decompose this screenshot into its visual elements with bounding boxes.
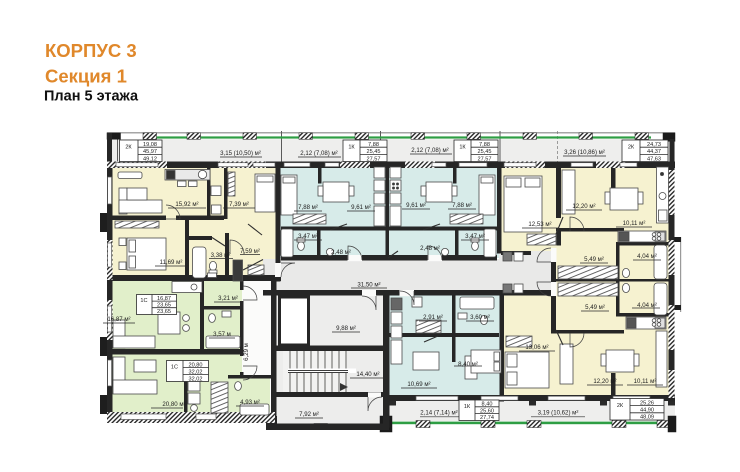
svg-text:КОРПУС 3: КОРПУС 3 [45, 40, 137, 61]
svg-text:3,15 (10,50) м²: 3,15 (10,50) м² [220, 150, 261, 157]
svg-text:19,08: 19,08 [143, 142, 157, 148]
svg-text:3,26 (10,86) м²: 3,26 (10,86) м² [564, 149, 605, 156]
svg-text:25,45: 25,45 [367, 149, 381, 155]
svg-text:23,65: 23,65 [157, 303, 171, 309]
svg-text:2,91 м²: 2,91 м² [423, 314, 443, 321]
svg-text:1С: 1С [140, 298, 147, 304]
svg-text:3,19 (10,62) м²: 3,19 (10,62) м² [538, 410, 579, 417]
svg-text:6,29 м: 6,29 м [243, 343, 250, 361]
svg-text:9,88 м²: 9,88 м² [336, 325, 356, 332]
svg-text:Секция 1: Секция 1 [45, 66, 127, 87]
svg-text:2,12 (7,08) м²: 2,12 (7,08) м² [300, 150, 337, 157]
svg-text:3,60 м²: 3,60 м² [470, 314, 490, 321]
svg-text:2К: 2К [628, 145, 635, 151]
svg-text:13,06 м²: 13,06 м² [525, 344, 548, 351]
svg-text:48,09: 48,09 [640, 415, 654, 421]
svg-text:8,40 м²: 8,40 м² [458, 361, 478, 368]
svg-text:2К: 2К [617, 403, 624, 409]
svg-text:1К: 1К [348, 145, 355, 151]
svg-text:14,40 м²: 14,40 м² [356, 371, 379, 378]
svg-text:16,87 м²: 16,87 м² [107, 316, 130, 323]
svg-text:27,74: 27,74 [480, 415, 494, 421]
svg-text:47,63: 47,63 [647, 156, 661, 162]
svg-text:4,93 м²: 4,93 м² [240, 399, 260, 406]
svg-text:15,92 м²: 15,92 м² [175, 201, 198, 208]
svg-text:1К: 1К [464, 404, 471, 410]
svg-text:27,57: 27,57 [478, 156, 492, 162]
svg-text:2,14 (7,14) м²: 2,14 (7,14) м² [420, 410, 457, 417]
svg-text:11,69 м²: 11,69 м² [160, 259, 183, 266]
svg-text:49,12: 49,12 [143, 156, 157, 162]
svg-text:2К: 2К [125, 145, 132, 151]
svg-text:1К: 1К [459, 145, 466, 151]
svg-text:3,47 м²: 3,47 м² [298, 233, 318, 240]
svg-text:32,02: 32,02 [189, 370, 203, 376]
svg-text:4,04 м²: 4,04 м² [637, 253, 657, 260]
svg-text:7,39 м²: 7,39 м² [229, 201, 249, 208]
svg-text:20,80 м²: 20,80 м² [162, 401, 185, 408]
svg-text:5,49 м²: 5,49 м² [584, 256, 604, 263]
svg-text:3,47 м²: 3,47 м² [465, 233, 485, 240]
svg-text:2,12 (7,08) м²: 2,12 (7,08) м² [411, 147, 448, 154]
svg-text:План 5 этажа: План 5 этажа [44, 89, 139, 105]
svg-text:10,69 м²: 10,69 м² [407, 381, 430, 388]
svg-text:1С: 1С [171, 365, 178, 371]
svg-text:44,90: 44,90 [640, 408, 654, 414]
svg-text:12,20 м²: 12,20 м² [593, 378, 616, 385]
svg-text:20,80: 20,80 [189, 363, 203, 369]
svg-text:10,11 м²: 10,11 м² [634, 378, 657, 385]
svg-text:24,73: 24,73 [647, 142, 661, 148]
svg-text:7,88 м²: 7,88 м² [452, 202, 472, 209]
svg-text:25,60: 25,60 [480, 408, 494, 414]
svg-text:8,40: 8,40 [482, 402, 493, 408]
svg-text:23,65: 23,65 [157, 309, 171, 315]
svg-text:44,37: 44,37 [647, 149, 661, 155]
svg-text:10,11 м²: 10,11 м² [623, 220, 646, 227]
svg-text:5,49 м²: 5,49 м² [585, 304, 605, 311]
svg-text:12,53 м²: 12,53 м² [528, 221, 551, 228]
svg-text:7,92 м²: 7,92 м² [299, 411, 319, 418]
svg-text:3,57 м: 3,57 м [213, 331, 231, 338]
svg-text:3,21 м²: 3,21 м² [218, 295, 238, 302]
svg-text:31,50 м²: 31,50 м² [357, 282, 380, 289]
svg-text:32,02: 32,02 [189, 377, 203, 383]
svg-text:2,48 м²: 2,48 м² [420, 245, 440, 252]
svg-text:7,88 м²: 7,88 м² [298, 204, 318, 211]
svg-text:25,26: 25,26 [640, 401, 654, 407]
svg-text:7,88: 7,88 [368, 142, 379, 148]
svg-text:12,20 м²: 12,20 м² [572, 203, 595, 210]
svg-text:7,59 м²: 7,59 м² [240, 248, 260, 255]
svg-text:9,61 м²: 9,61 м² [406, 202, 426, 209]
svg-text:45,97: 45,97 [143, 149, 157, 155]
svg-text:9,61 м²: 9,61 м² [351, 204, 371, 211]
svg-text:3,38 м²: 3,38 м² [211, 252, 231, 259]
svg-text:7,88: 7,88 [479, 142, 490, 148]
svg-text:2,48 м²: 2,48 м² [331, 249, 351, 256]
svg-text:25,45: 25,45 [478, 149, 492, 155]
svg-text:16,87: 16,87 [157, 296, 171, 302]
svg-text:27,57: 27,57 [367, 156, 381, 162]
